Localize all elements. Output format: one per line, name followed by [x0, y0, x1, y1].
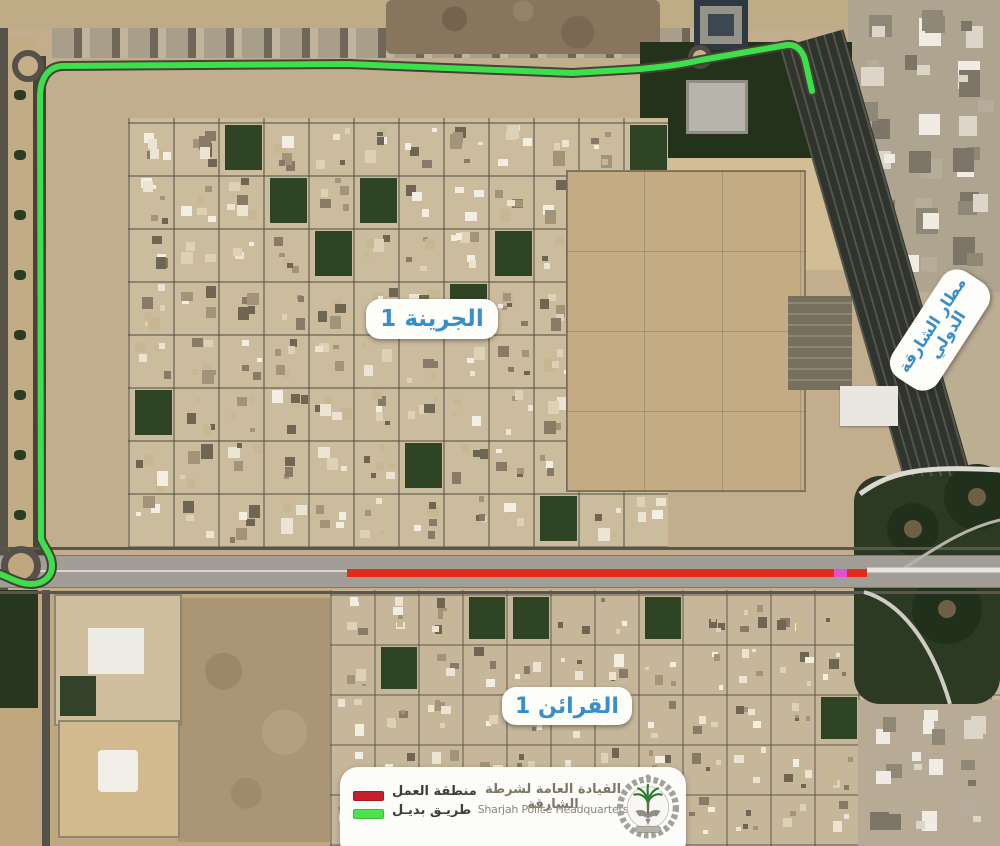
map-feature	[327, 458, 338, 470]
map-feature	[513, 597, 549, 639]
map-feature	[524, 666, 530, 674]
map-feature	[651, 733, 658, 738]
map-feature	[181, 292, 193, 301]
map-feature	[909, 151, 931, 173]
map-feature	[699, 716, 706, 724]
map-feature	[347, 675, 355, 684]
map-feature	[288, 346, 295, 354]
map-feature	[532, 727, 536, 731]
map-feature	[340, 186, 349, 195]
map-feature	[162, 218, 168, 224]
map-feature	[823, 674, 828, 680]
map-feature	[181, 252, 193, 264]
work-zone-swatch	[353, 791, 384, 801]
map-feature	[377, 137, 384, 145]
map-feature	[622, 621, 627, 626]
map-feature	[390, 720, 396, 728]
map-feature	[848, 757, 853, 762]
map-feature	[142, 297, 153, 309]
map-feature	[496, 449, 502, 453]
map-feature	[405, 143, 411, 150]
map-feature	[761, 747, 766, 753]
map-feature	[431, 372, 437, 379]
map-feature	[355, 752, 363, 759]
map-feature	[253, 444, 262, 454]
map-feature	[234, 461, 243, 471]
map-feature	[472, 416, 481, 426]
map-feature	[938, 600, 956, 618]
map-feature	[343, 204, 349, 211]
map-feature	[540, 496, 577, 541]
map-feature	[486, 679, 495, 687]
map-feature	[315, 231, 352, 276]
map-feature	[228, 447, 240, 458]
district-label-al-jurainah: الجرينة 1	[366, 299, 498, 339]
map-feature	[455, 187, 464, 193]
map-feature	[465, 212, 477, 221]
map-feature	[272, 390, 283, 403]
map-feature	[777, 620, 786, 630]
map-feature	[206, 286, 216, 298]
map-feature	[183, 501, 194, 513]
map-feature	[364, 456, 370, 463]
map-feature	[287, 263, 293, 268]
map-feature	[270, 178, 307, 223]
map-feature	[136, 460, 143, 468]
map-feature	[961, 798, 979, 816]
map-feature	[548, 401, 559, 414]
map-feature	[362, 684, 366, 686]
map-feature	[757, 605, 763, 612]
map-feature	[507, 200, 515, 206]
map-feature	[385, 421, 390, 425]
map-feature	[711, 618, 716, 622]
map-feature	[753, 777, 760, 783]
map-feature	[742, 649, 749, 658]
map-feature	[839, 801, 848, 809]
map-feature	[883, 814, 901, 830]
map-feature	[796, 621, 806, 634]
map-feature	[208, 216, 216, 222]
map-feature	[364, 253, 369, 257]
map-feature	[872, 26, 885, 37]
map-feature	[716, 760, 721, 765]
map-feature	[160, 305, 165, 311]
map-feature	[656, 498, 666, 506]
map-feature	[521, 321, 528, 326]
map-feature	[507, 303, 512, 307]
map-feature	[479, 514, 485, 521]
map-feature	[354, 699, 362, 705]
map-feature	[665, 755, 671, 763]
map-feature	[358, 628, 368, 635]
map-feature	[279, 253, 285, 257]
map-feature	[926, 258, 937, 272]
map-feature	[395, 597, 403, 606]
map-feature	[233, 248, 242, 256]
map-feature	[801, 784, 806, 788]
map-feature	[602, 159, 608, 165]
map-feature	[645, 667, 649, 670]
map-feature	[554, 143, 560, 150]
map-feature	[188, 451, 200, 464]
map-feature	[547, 468, 554, 476]
map-feature	[383, 235, 390, 242]
map-feature	[655, 675, 663, 685]
map-feature	[469, 232, 479, 242]
map-feature	[708, 807, 715, 812]
map-feature	[961, 21, 972, 31]
map-feature	[386, 0, 660, 54]
map-feature	[746, 810, 751, 816]
map-feature	[275, 349, 281, 356]
map-feature	[614, 654, 624, 667]
map-feature	[840, 386, 898, 426]
map-feature	[405, 443, 442, 488]
map-feature	[503, 293, 511, 301]
map-feature	[699, 797, 709, 805]
map-feature	[437, 598, 445, 608]
map-feature	[783, 818, 792, 827]
map-feature	[98, 750, 138, 792]
map-feature	[422, 160, 432, 168]
map-feature	[616, 508, 621, 513]
map-feature	[630, 125, 667, 170]
map-feature	[973, 194, 988, 212]
map-feature	[598, 528, 610, 541]
map-feature	[144, 454, 154, 466]
map-feature	[556, 180, 566, 190]
map-feature	[282, 136, 294, 148]
map-feature	[649, 750, 653, 756]
map-feature	[932, 729, 945, 745]
map-feature	[711, 722, 718, 727]
map-feature	[14, 210, 26, 220]
alt-route-swatch	[353, 809, 384, 819]
map-feature	[655, 756, 665, 763]
map-feature	[912, 752, 921, 761]
map-feature	[601, 753, 608, 763]
map-feature	[470, 371, 475, 376]
map-feature	[355, 602, 359, 606]
map-feature	[591, 138, 599, 144]
map-feature	[428, 705, 434, 712]
map-feature	[143, 496, 155, 508]
map-feature	[164, 371, 171, 379]
map-feature	[14, 90, 26, 100]
map-feature	[923, 213, 939, 229]
map-feature	[548, 294, 556, 301]
map-feature	[689, 812, 695, 816]
map-feature	[197, 208, 207, 215]
map-feature	[367, 239, 374, 248]
map-feature	[456, 233, 462, 240]
map-feature	[616, 629, 620, 634]
map-feature	[630, 522, 635, 527]
map-feature	[904, 520, 922, 538]
map-feature	[865, 68, 877, 82]
map-feature	[296, 505, 307, 515]
map-feature	[452, 472, 461, 484]
map-feature	[143, 181, 153, 192]
map-feature	[208, 159, 217, 167]
map-feature	[490, 661, 496, 669]
map-feature	[744, 610, 748, 615]
map-feature	[360, 530, 370, 538]
map-feature	[249, 396, 255, 403]
map-feature	[425, 239, 435, 250]
map-feature	[959, 116, 977, 136]
map-feature	[517, 468, 524, 474]
map-feature	[826, 618, 830, 622]
map-feature	[355, 724, 364, 736]
map-feature	[135, 390, 172, 435]
map-feature	[545, 210, 556, 224]
map-feature	[321, 189, 328, 197]
map-feature	[33, 56, 46, 588]
map-feature	[440, 723, 445, 728]
map-feature	[645, 597, 681, 639]
map-feature	[601, 598, 605, 602]
map-feature	[320, 520, 330, 528]
map-feature	[186, 242, 195, 251]
map-feature	[257, 358, 262, 362]
map-feature	[612, 748, 619, 758]
map-feature	[829, 659, 839, 669]
map-feature	[8, 36, 36, 588]
map-feature	[498, 346, 509, 357]
map-feature	[148, 317, 160, 330]
map-feature	[236, 528, 247, 540]
map-feature	[916, 821, 925, 829]
map-feature	[320, 199, 331, 208]
map-feature	[443, 611, 453, 620]
map-feature	[429, 502, 436, 509]
map-feature	[844, 785, 849, 790]
map-feature	[575, 671, 583, 680]
map-feature	[961, 760, 975, 770]
map-feature	[151, 215, 158, 221]
map-feature	[519, 754, 524, 760]
map-feature	[706, 767, 710, 771]
map-feature	[136, 512, 141, 516]
map-feature	[12, 50, 44, 82]
map-feature	[412, 192, 422, 201]
map-feature	[231, 414, 236, 420]
map-feature	[14, 270, 26, 280]
map-feature	[612, 531, 617, 537]
map-feature	[227, 204, 235, 210]
map-feature	[671, 681, 676, 686]
map-feature	[371, 473, 376, 478]
map-feature	[496, 462, 507, 471]
map-feature	[788, 296, 852, 390]
map-feature	[285, 467, 293, 477]
map-feature	[686, 80, 748, 134]
map-feature	[652, 510, 663, 519]
map-feature	[565, 760, 571, 767]
map-feature	[274, 237, 283, 246]
map-feature	[692, 753, 701, 764]
map-feature	[437, 654, 446, 661]
map-feature	[158, 284, 165, 291]
map-feature	[335, 178, 341, 183]
map-feature	[884, 154, 895, 163]
map-feature	[694, 0, 748, 50]
map-feature	[248, 210, 257, 220]
map-feature	[523, 138, 532, 146]
map-feature	[60, 676, 96, 716]
map-feature	[474, 647, 484, 656]
map-feature	[320, 404, 331, 416]
map-feature	[756, 671, 763, 676]
map-feature	[430, 361, 438, 368]
map-feature	[806, 716, 810, 721]
map-feature	[205, 254, 216, 262]
map-feature	[821, 697, 857, 739]
map-feature	[544, 421, 556, 434]
map-feature	[249, 242, 254, 246]
map-feature	[833, 821, 842, 832]
map-feature	[206, 307, 216, 318]
map-feature	[790, 811, 796, 816]
map-feature	[14, 150, 26, 160]
map-feature	[339, 512, 346, 520]
map-feature	[401, 710, 405, 714]
map-feature	[428, 531, 435, 539]
map-feature	[246, 519, 255, 526]
map-feature	[0, 547, 1000, 550]
map-feature	[203, 425, 211, 435]
map-feature	[736, 706, 744, 714]
map-feature	[515, 674, 520, 679]
map-feature	[14, 390, 26, 400]
map-feature	[917, 65, 930, 75]
map-feature	[376, 412, 383, 421]
map-feature	[379, 444, 385, 451]
map-feature	[480, 714, 486, 721]
map-feature	[876, 771, 891, 784]
map-feature	[407, 753, 415, 761]
map-feature	[524, 371, 530, 375]
map-feature	[872, 119, 890, 139]
map-feature	[739, 676, 747, 683]
map-feature	[333, 345, 339, 349]
map-feature	[281, 518, 293, 534]
map-feature	[283, 503, 292, 512]
map-feature	[14, 330, 26, 340]
map-feature	[914, 764, 922, 770]
map-feature	[842, 672, 846, 676]
map-feature	[844, 814, 849, 819]
map-feature	[452, 412, 457, 416]
map-feature	[517, 518, 524, 526]
map-feature	[157, 471, 168, 486]
map-feature	[237, 397, 247, 406]
map-feature	[42, 590, 50, 846]
map-feature	[200, 147, 210, 159]
map-feature	[347, 622, 357, 630]
map-feature	[692, 707, 696, 710]
map-feature	[230, 537, 235, 543]
map-feature	[474, 190, 484, 197]
sharjah-police-emblem	[612, 769, 684, 846]
district-label-al-qarayen: القرائن 1	[502, 687, 632, 725]
map-feature	[88, 628, 144, 674]
map-feature	[743, 824, 748, 829]
map-feature	[552, 361, 559, 368]
map-feature	[198, 196, 204, 203]
map-feature	[206, 531, 214, 538]
map-feature	[253, 372, 261, 380]
map-feature	[441, 706, 451, 714]
map-feature	[716, 628, 721, 632]
map-feature	[573, 731, 580, 738]
map-feature	[291, 394, 300, 403]
map-feature	[388, 463, 396, 469]
map-feature	[0, 590, 38, 708]
map-feature	[587, 758, 593, 763]
map-feature	[714, 654, 720, 661]
map-feature	[464, 159, 470, 163]
map-feature	[924, 710, 938, 721]
map-feature	[533, 662, 541, 672]
map-feature	[285, 457, 295, 466]
map-feature	[152, 236, 162, 244]
map-feature	[239, 512, 247, 520]
map-feature	[792, 703, 799, 711]
map-feature	[406, 257, 412, 262]
map-feature	[187, 479, 195, 488]
map-feature	[279, 160, 285, 166]
map-feature	[748, 709, 755, 715]
map-feature	[410, 147, 419, 156]
map-feature	[582, 626, 590, 634]
map-feature	[793, 759, 799, 767]
map-feature	[450, 682, 455, 687]
map-feature	[386, 472, 395, 479]
map-feature	[446, 668, 455, 676]
map-feature	[287, 425, 296, 434]
map-feature	[507, 125, 519, 139]
legend-panel: منطقة العمل طريـق بديـل القيادة العامة ل…	[340, 767, 686, 846]
map-feature	[14, 510, 26, 520]
map-feature	[522, 350, 529, 357]
map-feature	[225, 125, 262, 170]
map-feature	[968, 780, 976, 786]
map-feature	[139, 354, 147, 362]
map-feature	[424, 404, 435, 413]
map-feature	[450, 750, 459, 761]
map-feature	[753, 721, 761, 728]
map-feature	[508, 367, 514, 371]
map-feature	[435, 700, 440, 705]
map-feature	[514, 200, 523, 207]
map-feature	[605, 132, 611, 137]
map-feature	[365, 150, 376, 163]
map-feature	[479, 496, 484, 502]
map-feature	[237, 205, 248, 216]
map-feature	[393, 607, 403, 615]
map-feature	[332, 412, 342, 420]
map-feature	[619, 669, 628, 678]
map-feature	[379, 531, 384, 535]
map-feature	[626, 723, 630, 726]
map-feature	[205, 186, 212, 192]
map-feature	[14, 450, 26, 460]
map-feature	[201, 444, 213, 459]
map-feature	[335, 304, 346, 313]
